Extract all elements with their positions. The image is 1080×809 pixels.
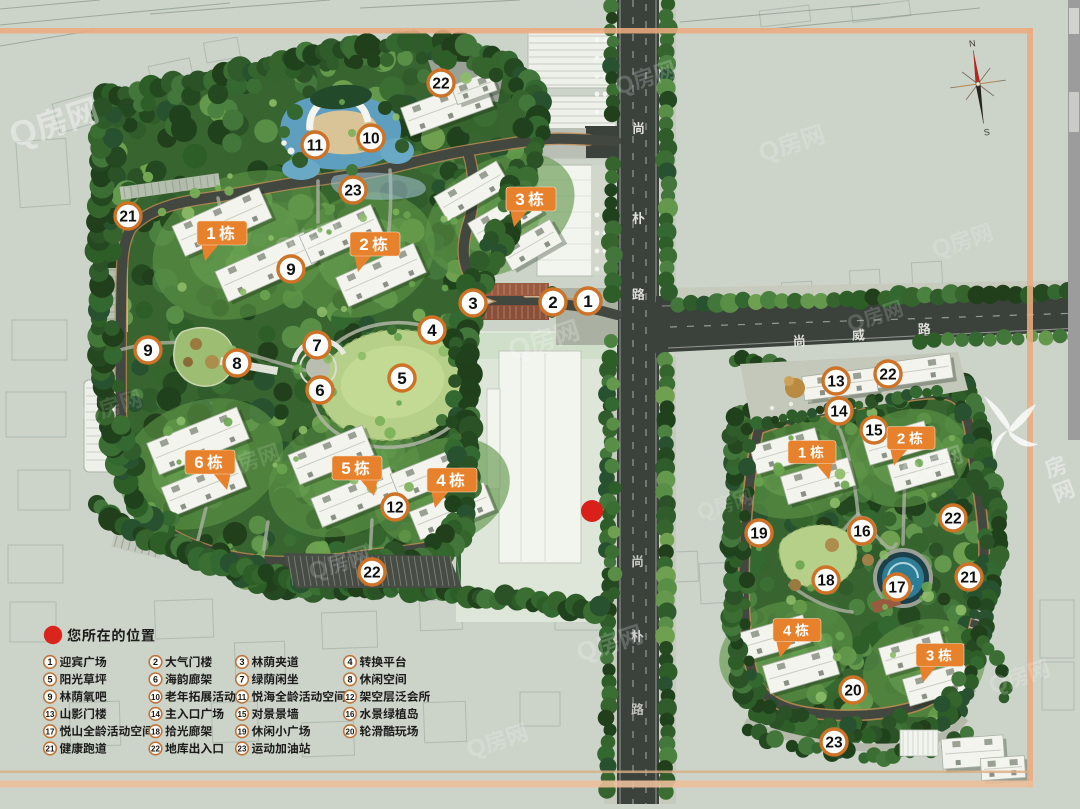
svg-text:8: 8 — [347, 675, 352, 685]
svg-text:19: 19 — [750, 526, 768, 543]
svg-text:2: 2 — [897, 430, 905, 447]
svg-text:23: 23 — [238, 745, 247, 754]
svg-text:18: 18 — [817, 573, 835, 590]
svg-text:15: 15 — [238, 710, 247, 719]
svg-text:1: 1 — [798, 444, 806, 461]
svg-text:4: 4 — [427, 321, 437, 340]
svg-text:22: 22 — [944, 511, 961, 528]
svg-text:14: 14 — [830, 404, 848, 421]
svg-text:12: 12 — [346, 693, 355, 702]
svg-text:7: 7 — [312, 336, 321, 355]
svg-text:5: 5 — [397, 369, 406, 388]
svg-text:5: 5 — [341, 459, 350, 478]
svg-text:22: 22 — [363, 565, 380, 582]
svg-text:9: 9 — [143, 341, 152, 360]
svg-text:10: 10 — [362, 131, 379, 148]
svg-text:4: 4 — [436, 471, 446, 490]
svg-text:20: 20 — [844, 683, 861, 700]
svg-text:16: 16 — [346, 710, 355, 719]
svg-text:23: 23 — [825, 735, 843, 752]
svg-text:11: 11 — [307, 138, 324, 155]
svg-text:15: 15 — [865, 423, 883, 440]
svg-text:4: 4 — [347, 657, 352, 667]
svg-text:9: 9 — [47, 692, 52, 702]
svg-text:10: 10 — [151, 693, 160, 702]
svg-text:18: 18 — [151, 727, 160, 736]
svg-text:7: 7 — [239, 675, 244, 685]
svg-text:13: 13 — [827, 374, 845, 391]
svg-text:23: 23 — [344, 183, 362, 200]
svg-text:22: 22 — [879, 367, 896, 384]
svg-text:21: 21 — [46, 745, 55, 754]
svg-text:14: 14 — [151, 710, 160, 719]
svg-text:8: 8 — [232, 354, 241, 373]
svg-text:3: 3 — [468, 294, 477, 313]
svg-text:17: 17 — [46, 727, 55, 736]
svg-text:21: 21 — [119, 209, 137, 226]
svg-text:21: 21 — [960, 570, 978, 587]
svg-text:3: 3 — [239, 657, 244, 667]
svg-text:3: 3 — [926, 647, 934, 664]
svg-text:19: 19 — [238, 727, 247, 736]
svg-text:22: 22 — [151, 745, 160, 754]
svg-text:17: 17 — [888, 580, 905, 597]
svg-text:22: 22 — [432, 76, 449, 93]
svg-text:6: 6 — [153, 675, 158, 685]
svg-text:6: 6 — [194, 453, 203, 472]
svg-text:2: 2 — [359, 235, 368, 254]
svg-text:20: 20 — [346, 727, 355, 736]
svg-text:1: 1 — [47, 657, 52, 667]
svg-text:11: 11 — [238, 693, 247, 702]
svg-text:N: N — [968, 38, 976, 49]
svg-text:16: 16 — [853, 524, 871, 541]
svg-text:5: 5 — [47, 675, 52, 685]
svg-text:1: 1 — [583, 292, 592, 311]
svg-text:1: 1 — [206, 224, 215, 243]
svg-text:4: 4 — [783, 622, 792, 639]
svg-text:13: 13 — [46, 710, 55, 719]
svg-text:2: 2 — [153, 657, 158, 667]
svg-text:3: 3 — [515, 190, 524, 209]
svg-text:12: 12 — [386, 500, 403, 517]
svg-text:6: 6 — [315, 381, 324, 400]
svg-text:9: 9 — [286, 260, 295, 279]
svg-text:2: 2 — [548, 293, 557, 312]
